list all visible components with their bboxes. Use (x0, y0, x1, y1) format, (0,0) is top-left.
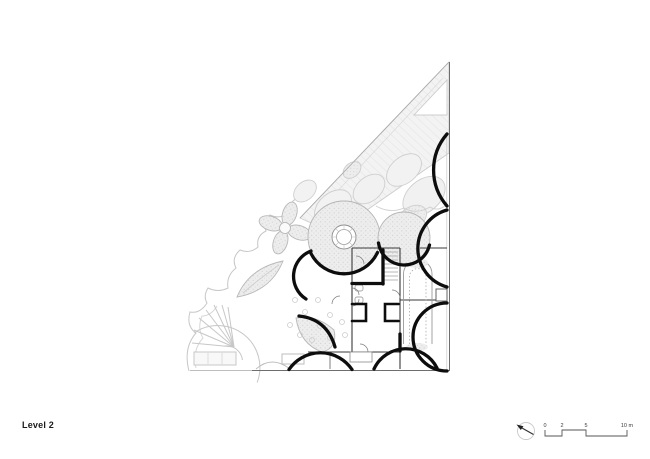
north-arrow-icon (517, 423, 535, 440)
scale-label-2: 2 (560, 423, 563, 429)
scale-label-0: 0 (543, 423, 546, 429)
floorplan-sheet: Level 2 0 2 5 10 m (0, 0, 650, 459)
fan-stair (192, 305, 275, 386)
long-stair (404, 258, 433, 351)
base-niche (350, 352, 372, 362)
scale-bar: 0 2 5 10 m (543, 423, 633, 436)
right-wall-niche (436, 289, 447, 301)
floorplan-canvas: Level 2 0 2 5 10 m (0, 0, 650, 459)
level-label: Level 2 (22, 420, 54, 430)
scale-label-10: 10 m (621, 423, 634, 429)
scale-label-5: 5 (584, 423, 587, 429)
